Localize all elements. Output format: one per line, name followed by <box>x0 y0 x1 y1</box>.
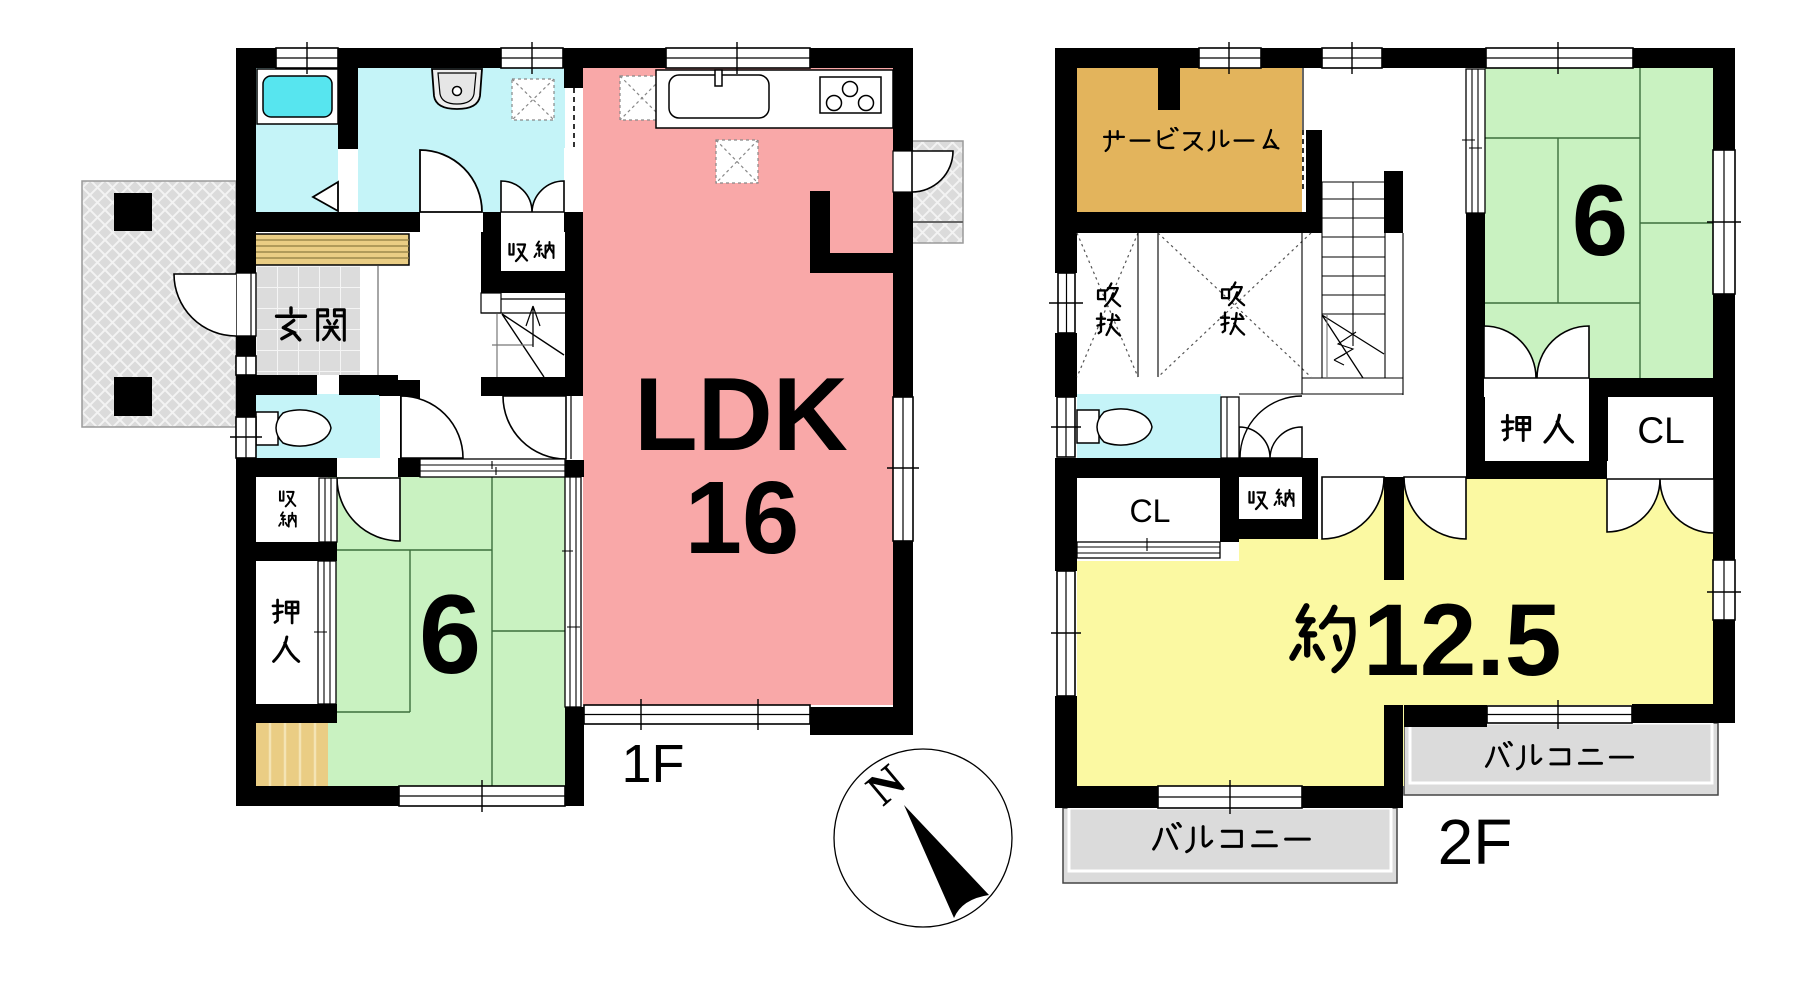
svg-text:16: 16 <box>685 460 800 575</box>
svg-text:CL: CL <box>1637 410 1684 451</box>
svg-text:12.5: 12.5 <box>1363 583 1562 697</box>
svg-text:2F: 2F <box>1438 806 1513 878</box>
svg-text:CL: CL <box>1130 493 1171 529</box>
svg-text:6: 6 <box>1572 165 1628 277</box>
svg-text:1F: 1F <box>621 734 684 794</box>
svg-text:6: 6 <box>419 572 481 697</box>
svg-text:LDK: LDK <box>634 357 848 473</box>
